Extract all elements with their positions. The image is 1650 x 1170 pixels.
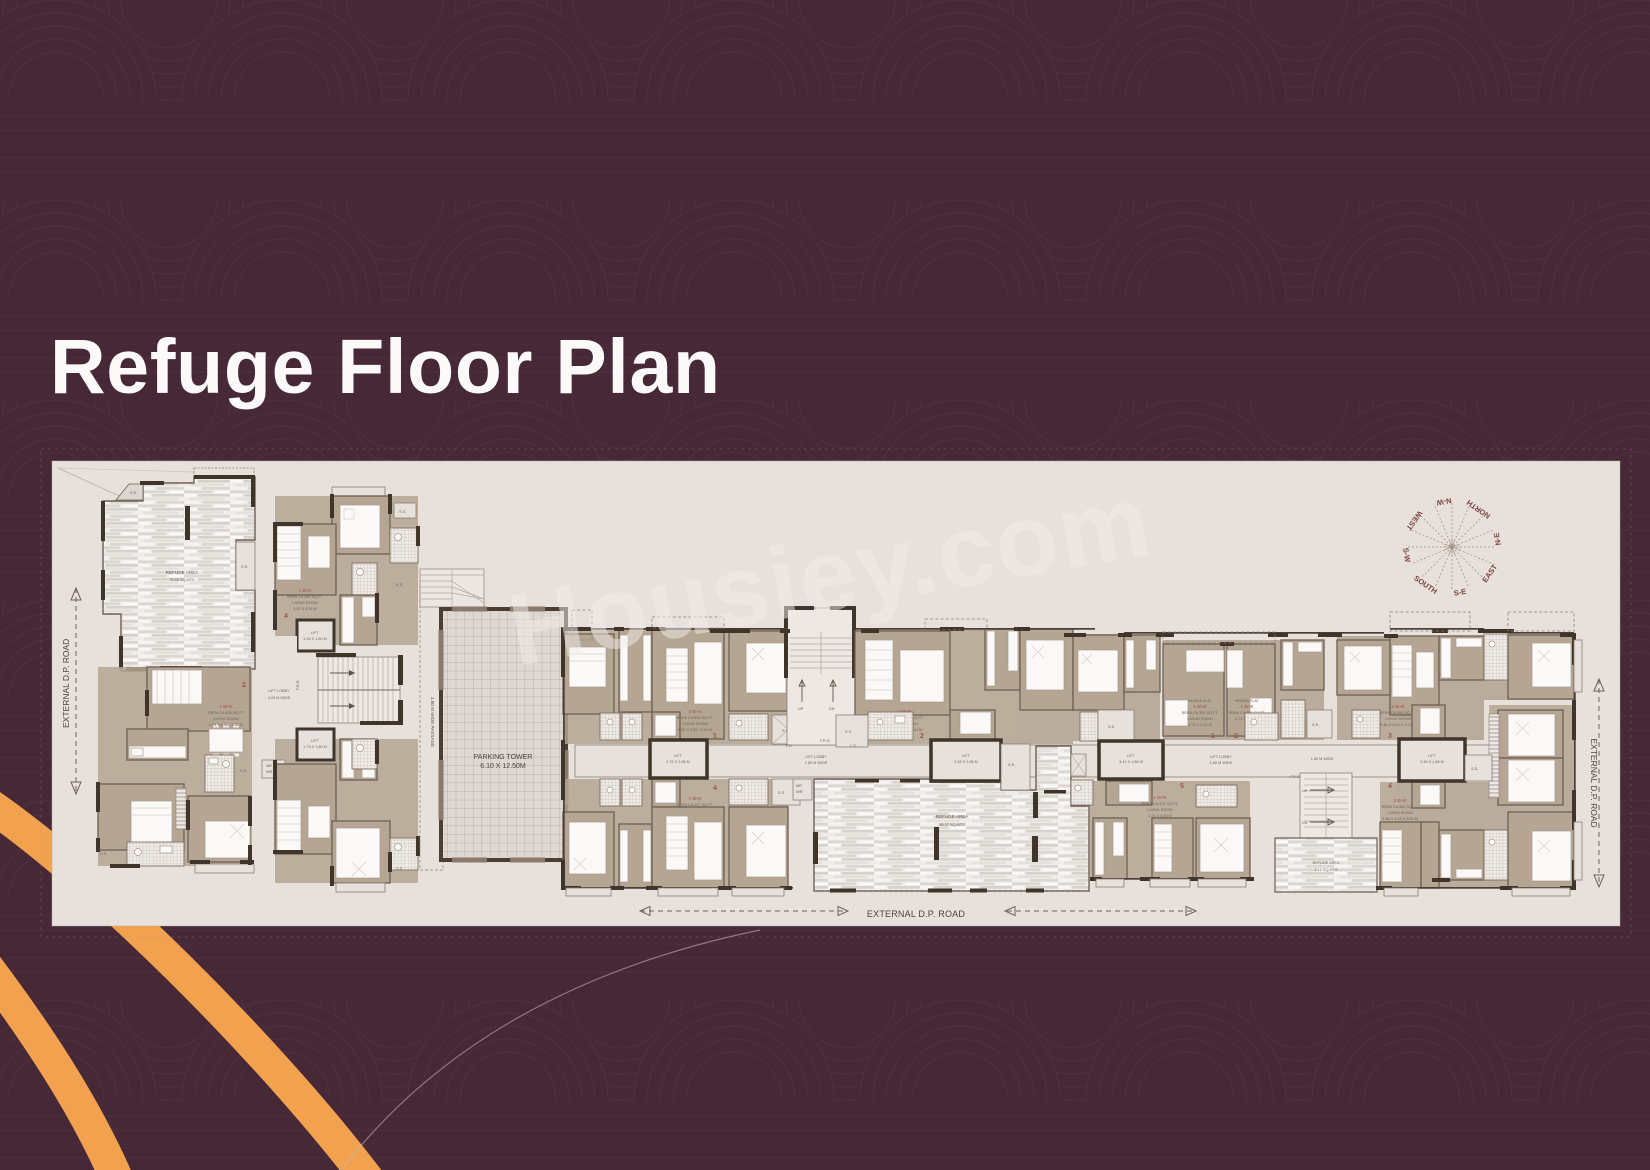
svg-text:LIVING ROOM: LIVING ROOM — [292, 601, 317, 605]
svg-text:WR: WR — [266, 770, 273, 774]
svg-text:6.10 X 12.50M: 6.10 X 12.50M — [480, 763, 526, 770]
svg-text:S.S.: S.S. — [1108, 725, 1115, 729]
svg-text:S.S.: S.S. — [399, 510, 406, 514]
svg-text:S.S.: S.S. — [241, 565, 248, 569]
svg-text:2: 2 — [920, 733, 924, 740]
svg-text:S.S.: S.S. — [240, 769, 247, 773]
svg-text:3.48 X 3.94 X 3.02 M: 3.48 X 3.94 X 3.02 M — [1382, 817, 1418, 821]
svg-text:PARKING TOWER: PARKING TOWER — [474, 754, 533, 761]
svg-text:4.29 M WIDE: 4.29 M WIDE — [268, 696, 291, 700]
svg-text:1.80 M WIDE: 1.80 M WIDE — [1210, 761, 1233, 765]
svg-text:S.S.: S.S. — [130, 491, 137, 495]
svg-text:LIVING ROOM: LIVING ROOM — [682, 722, 707, 726]
svg-text:EXTERNAL D.P. ROAD: EXTERNAL D.P. ROAD — [61, 639, 71, 728]
svg-text:4: 4 — [284, 613, 288, 620]
svg-text:3.41 X 1.86 M: 3.41 X 1.86 M — [1119, 760, 1143, 764]
svg-text:REFUGE AREA: REFUGE AREA — [936, 814, 970, 819]
svg-text:MHADA FLAT: MHADA FLAT — [1235, 699, 1259, 703]
svg-text:DN: DN — [829, 707, 835, 711]
svg-text:Refuge Floor Plan: Refuge Floor Plan — [50, 324, 721, 410]
svg-text:S.S.: S.S. — [396, 867, 403, 871]
svg-text:S.S.: S.S. — [1471, 767, 1478, 771]
svg-text:3.36 X 1.86 M: 3.36 X 1.86 M — [1420, 760, 1444, 764]
svg-text:LIFT: LIFT — [962, 754, 970, 758]
svg-text:REFUGE AREA: REFUGE AREA — [166, 570, 200, 575]
svg-text:2 BHK: 2 BHK — [219, 704, 233, 709]
svg-text:3: 3 — [1388, 733, 1392, 740]
svg-text:S.S.: S.S. — [845, 730, 852, 734]
svg-text:2.74 X 4.32 M: 2.74 X 4.32 M — [1188, 723, 1212, 727]
svg-text:LIFT LOBBY: LIFT LOBBY — [1210, 755, 1232, 759]
svg-text:UP: UP — [798, 707, 804, 711]
svg-text:3.48 X 3.94 X 3.02 M: 3.48 X 3.94 X 3.02 M — [1380, 723, 1416, 727]
svg-text:MR: MR — [796, 784, 802, 788]
svg-text:UP: UP — [1302, 789, 1308, 793]
svg-text:2 BHK: 2 BHK — [688, 709, 702, 714]
svg-text:LIFT LOBBY: LIFT LOBBY — [805, 755, 827, 759]
svg-text:F.R.D.: F.R.D. — [1290, 775, 1301, 779]
svg-text:S.S.: S.S. — [778, 791, 785, 795]
svg-text:3.92 X 4.06 M: 3.92 X 4.06 M — [293, 607, 317, 611]
svg-text:L.S.: L.S. — [850, 744, 857, 748]
svg-text:5.10 SQ.MTS: 5.10 SQ.MTS — [1314, 868, 1337, 872]
svg-text:1.80 M WIDE: 1.80 M WIDE — [1311, 757, 1334, 761]
svg-text:2: 2 — [242, 682, 246, 689]
svg-text:2.72 X 1.86 M: 2.72 X 1.86 M — [666, 760, 690, 764]
svg-text:F.R.D.: F.R.D. — [296, 679, 300, 690]
svg-text:2 BHK: 2 BHK — [1393, 798, 1407, 803]
svg-text:1 BHK: 1 BHK — [298, 588, 312, 593]
svg-text:RERA CA 626 SQ.FT.: RERA CA 626 SQ.FT. — [677, 716, 714, 720]
svg-text:4: 4 — [713, 785, 717, 792]
svg-text:DN: DN — [1302, 821, 1308, 825]
svg-text:S.S.: S.S. — [396, 583, 403, 587]
svg-text:F.D.: F.D. — [786, 744, 793, 748]
svg-text:1: 1 — [1211, 733, 1215, 740]
svg-text:S.S.: S.S. — [100, 852, 107, 856]
svg-text:LIFT: LIFT — [311, 631, 319, 635]
svg-text:76.60 SQ.MTS: 76.60 SQ.MTS — [169, 578, 195, 582]
svg-text:1.80 M WIDE PASSAGE: 1.80 M WIDE PASSAGE — [430, 697, 435, 747]
svg-text:LIFT: LIFT — [674, 754, 682, 758]
svg-text:1 BHK: 1 BHK — [1193, 704, 1207, 709]
svg-text:4.29 X 4.06 / 3.34 M: 4.29 X 4.06 / 3.34 M — [209, 723, 243, 727]
svg-text:1 BHK: 1 BHK — [1240, 704, 1254, 709]
svg-text:MR: MR — [266, 764, 272, 768]
svg-text:RERA CA 800 SQ.FT: RERA CA 800 SQ.FT — [208, 711, 245, 715]
svg-text:LIFT: LIFT — [1127, 754, 1135, 758]
svg-text:89.07 SQ.MTS: 89.07 SQ.MTS — [939, 823, 965, 827]
svg-text:LIFT LOBBY: LIFT LOBBY — [268, 689, 290, 693]
svg-text:S.S.: S.S. — [1312, 723, 1319, 727]
svg-text:LIFT: LIFT — [311, 739, 319, 743]
svg-text:1: 1 — [713, 733, 717, 740]
svg-text:MHADA FLAT: MHADA FLAT — [1188, 699, 1212, 703]
svg-text:WR: WR — [796, 790, 803, 794]
svg-text:1.80 M WIDE: 1.80 M WIDE — [805, 761, 828, 765]
svg-text:EXTERNAL D.P. ROAD: EXTERNAL D.P. ROAD — [867, 909, 965, 919]
svg-text:4: 4 — [1388, 783, 1392, 790]
svg-text:LIVING ROOM: LIVING ROOM — [1387, 811, 1412, 815]
svg-text:EXTERNAL D.P. ROAD: EXTERNAL D.P. ROAD — [1589, 738, 1599, 827]
svg-text:LIVING ROOM: LIVING ROOM — [1385, 717, 1410, 721]
svg-text:LIVING ROOM: LIVING ROOM — [1147, 808, 1172, 812]
svg-text:RERA CA 474 SQ.FT.: RERA CA 474 SQ.FT. — [1142, 802, 1179, 806]
svg-text:2: 2 — [1234, 733, 1238, 740]
svg-text:LIVING ROOM: LIVING ROOM — [1187, 717, 1212, 721]
svg-text:RERA CA 652 SQ.FT.: RERA CA 652 SQ.FT. — [1380, 711, 1417, 715]
svg-text:REFUGE AREA: REFUGE AREA — [1312, 861, 1339, 865]
svg-text:1.73 X 1.80 M: 1.73 X 1.80 M — [303, 745, 327, 749]
svg-text:1.94 X 1.80 M: 1.94 X 1.80 M — [303, 637, 327, 641]
svg-text:RERA CA 381 SQ.FT.: RERA CA 381 SQ.FT. — [287, 595, 324, 599]
svg-text:2 BHK: 2 BHK — [1391, 704, 1405, 709]
svg-text:1 BHK: 1 BHK — [1153, 795, 1167, 800]
svg-text:LIVING ROOM: LIVING ROOM — [213, 717, 238, 721]
svg-text:2.63 X 1.86 M: 2.63 X 1.86 M — [954, 760, 978, 764]
svg-text:LIFT: LIFT — [1428, 754, 1436, 758]
svg-text:2 BHK: 2 BHK — [688, 796, 702, 801]
svg-text:S.S.: S.S. — [1008, 763, 1015, 767]
svg-text:5: 5 — [1180, 783, 1184, 790]
svg-text:RERA CA 391 SQ.FT.: RERA CA 391 SQ.FT. — [1182, 711, 1219, 715]
svg-text:4.29 X 3.02 / 3.34 M: 4.29 X 3.02 / 3.34 M — [678, 728, 712, 732]
svg-text:F.R.D.: F.R.D. — [820, 739, 831, 743]
